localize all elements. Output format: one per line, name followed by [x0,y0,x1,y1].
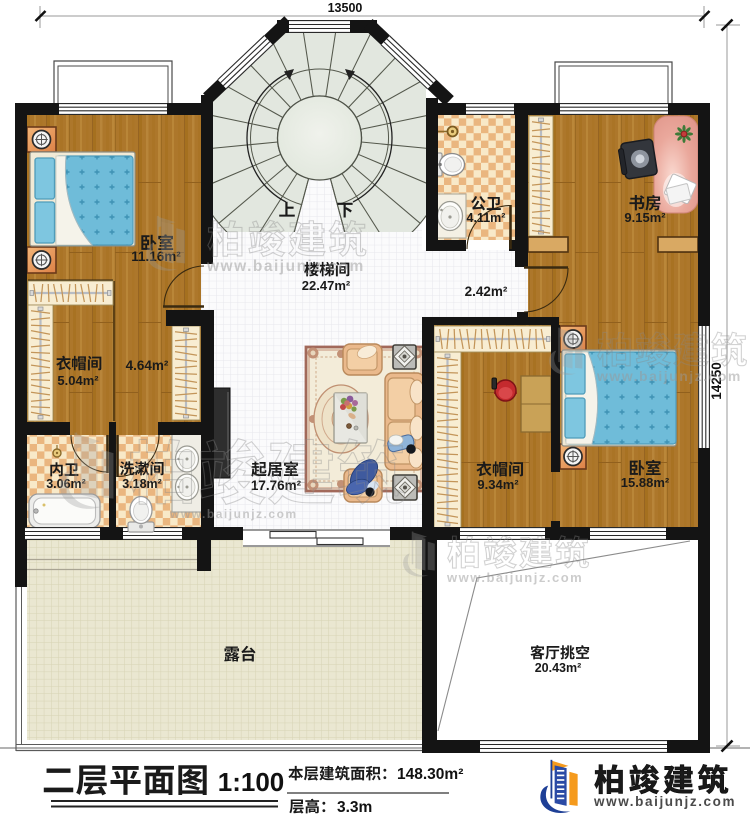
svg-text:9.34m²: 9.34m² [477,477,519,492]
svg-text:5.04m²: 5.04m² [57,373,99,388]
svg-text:11.16m²: 11.16m² [131,249,181,264]
svg-text:9.15m²: 9.15m² [624,210,666,225]
svg-text:22.47m²: 22.47m² [302,278,351,293]
svg-text:www.baijunjz.com: www.baijunjz.com [169,507,298,521]
svg-text:20.43m²: 20.43m² [535,661,582,675]
svg-text:www.baijunjz.com: www.baijunjz.com [446,570,583,585]
svg-text:www.baijunjz.com: www.baijunjz.com [596,368,742,384]
svg-text:www.baijunjz.com: www.baijunjz.com [206,258,365,275]
svg-text:www.baijunjz.com: www.baijunjz.com [593,794,736,809]
svg-text:3.18m²: 3.18m² [122,477,162,491]
svg-text:13500: 13500 [328,1,363,15]
svg-text:1:100: 1:100 [218,767,285,797]
svg-text:15.88m²: 15.88m² [621,475,670,490]
svg-text:4.64m²: 4.64m² [126,358,169,373]
svg-text:3.3m: 3.3m [337,799,372,816]
svg-text:4.11m²: 4.11m² [467,211,506,225]
svg-text:2.42m²: 2.42m² [465,284,508,299]
svg-text:148.30m²: 148.30m² [397,766,463,783]
